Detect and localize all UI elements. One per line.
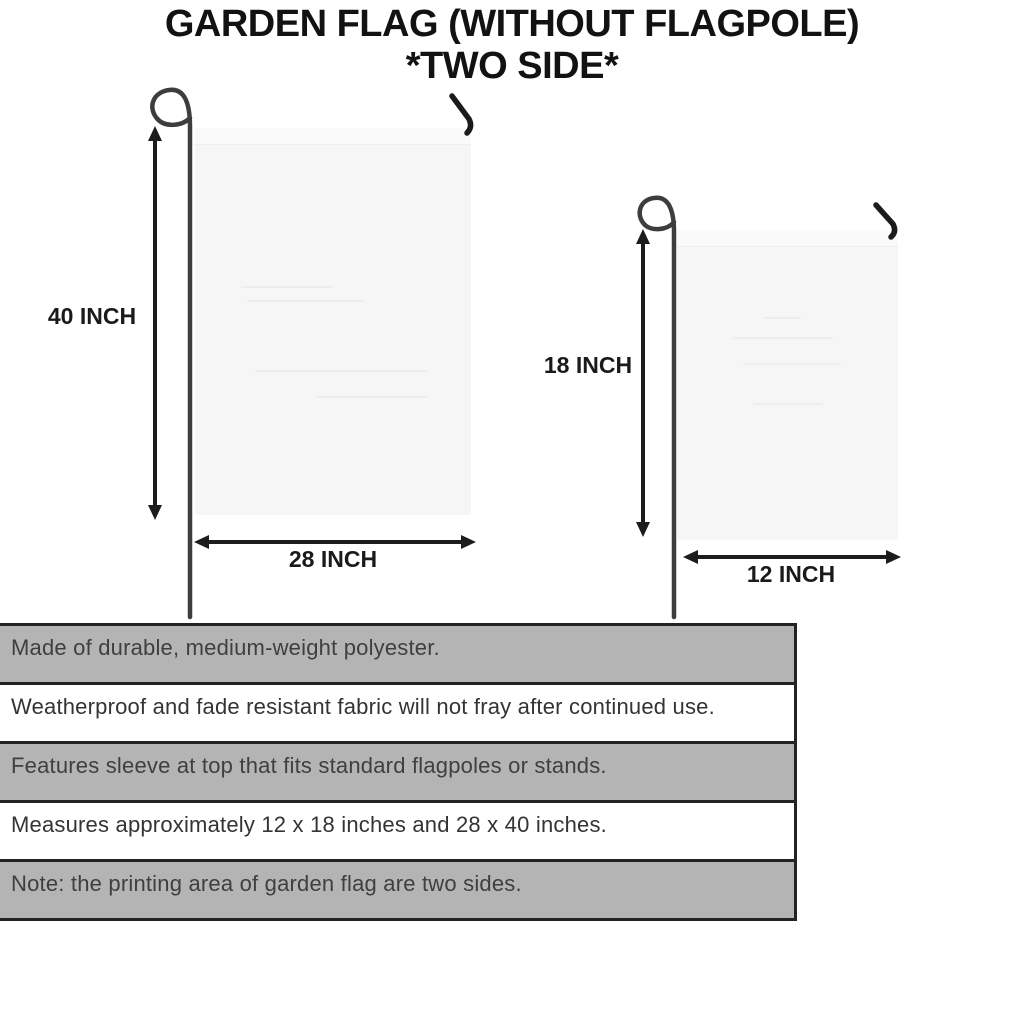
small-flag-width-label: 12 INCH (716, 561, 866, 588)
fabric-crease (753, 403, 823, 405)
feature-text: Features sleeve at top that fits standar… (11, 753, 607, 778)
fabric-crease (763, 317, 801, 319)
garden-flag-infographic: GARDEN FLAG (WITHOUT FLAGPOLE) *TWO SIDE… (0, 0, 1024, 1024)
small-flag-height-label: 18 INCH (518, 352, 658, 379)
fabric-crease (247, 300, 365, 302)
feature-row: Note: the printing area of garden flag a… (0, 859, 797, 921)
feature-text: Weatherproof and fade resistant fabric w… (11, 694, 715, 719)
small-flagpole-icon (640, 198, 674, 617)
large-flag-height-label: 40 INCH (36, 303, 148, 330)
small-flag (677, 230, 898, 540)
feature-row: Features sleeve at top that fits standar… (0, 741, 797, 803)
large-flagpole-icon (152, 90, 190, 617)
fabric-crease (733, 337, 833, 339)
large-flag-sleeve (195, 128, 471, 145)
feature-row: Made of durable, medium-weight polyester… (0, 623, 797, 685)
large-flag (195, 128, 471, 515)
fabric-crease (241, 286, 333, 288)
feature-text: Made of durable, medium-weight polyester… (11, 635, 440, 660)
page-title-line-1: GARDEN FLAG (WITHOUT FLAGPOLE) (0, 3, 1024, 45)
feature-list: Made of durable, medium-weight polyester… (0, 623, 797, 921)
height-arrow-large-icon (148, 126, 162, 520)
height-arrow-small-icon (636, 229, 650, 537)
feature-text: Measures approximately 12 x 18 inches an… (11, 812, 607, 837)
small-flag-sleeve (677, 230, 898, 247)
fabric-crease (743, 363, 841, 365)
feature-text: Note: the printing area of garden flag a… (11, 871, 522, 896)
feature-row: Weatherproof and fade resistant fabric w… (0, 682, 797, 744)
large-flag-width-label: 28 INCH (258, 546, 408, 573)
page-title: GARDEN FLAG (WITHOUT FLAGPOLE) *TWO SIDE… (0, 3, 1024, 87)
fabric-crease (255, 370, 427, 372)
fabric-crease (317, 396, 427, 398)
feature-row: Measures approximately 12 x 18 inches an… (0, 800, 797, 862)
page-title-line-2: *TWO SIDE* (0, 45, 1024, 87)
